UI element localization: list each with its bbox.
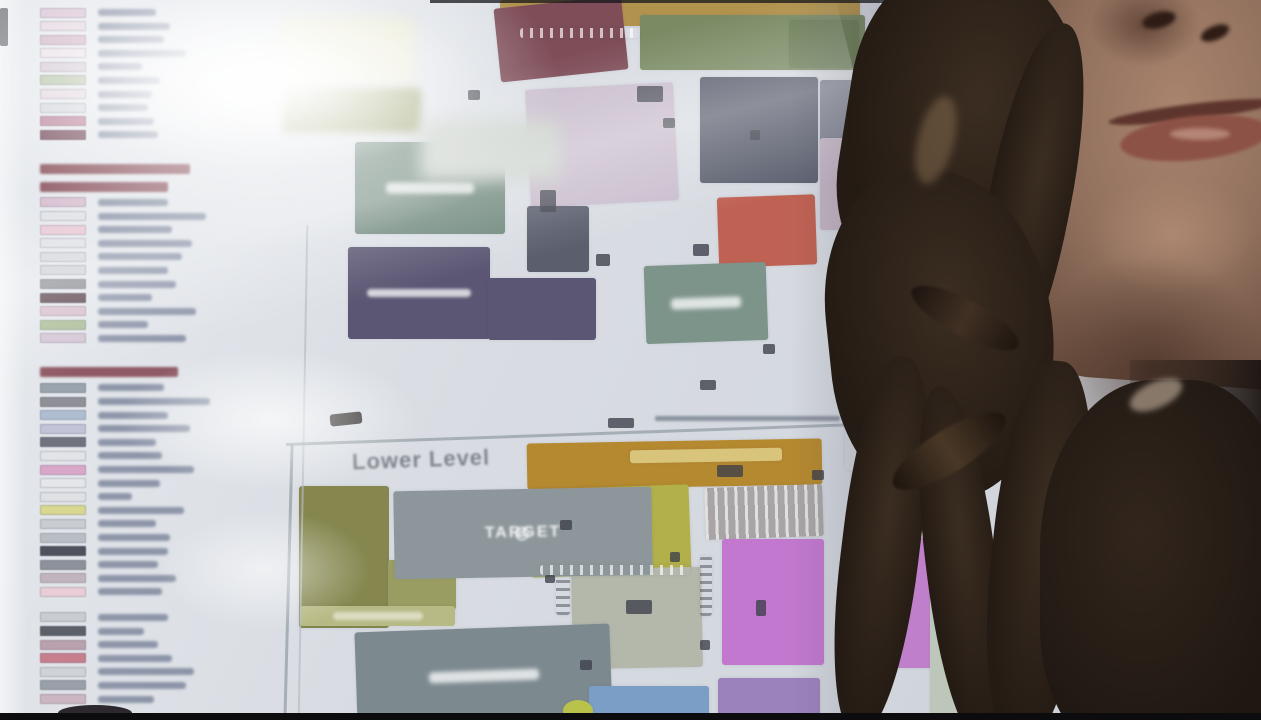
letterbox-bar <box>0 713 1261 720</box>
target-wordmark: TARGET <box>485 523 562 542</box>
map-icon <box>700 640 710 650</box>
map-icon <box>596 254 610 266</box>
map-icon <box>763 344 775 354</box>
washed-walkway <box>420 120 560 180</box>
parking-ticks <box>540 565 690 575</box>
upper-purple-ext <box>488 278 596 340</box>
store-label-blurred <box>671 296 741 309</box>
glare-washed-block <box>282 18 414 82</box>
map-icon <box>693 244 709 256</box>
map-icon <box>545 575 555 583</box>
map-icon <box>717 465 743 477</box>
map-icon <box>560 520 572 530</box>
lower-level-title: Lower Level <box>352 445 491 476</box>
frame-top-line <box>430 0 885 3</box>
upper-slate-small <box>527 206 589 272</box>
map-icon <box>637 86 663 102</box>
person-hair <box>1040 380 1261 720</box>
map-icon <box>670 552 680 562</box>
person-lip-highlight <box>1170 128 1230 140</box>
map-icon <box>540 190 556 212</box>
lower-ochre-band <box>527 438 823 489</box>
upper-olive-washed <box>283 88 421 132</box>
lower-olive-strip <box>300 606 455 626</box>
fine-print-blurred <box>655 416 840 421</box>
upper-maroon-block <box>493 0 628 82</box>
map-icon <box>700 380 716 390</box>
map-icon <box>608 418 634 428</box>
map-icon <box>756 600 766 616</box>
upper-salmon-block <box>717 194 817 267</box>
parking-ticks <box>520 28 640 38</box>
upper-green-anchor <box>644 262 769 344</box>
map-icon <box>663 118 675 128</box>
lower-magenta-block <box>722 539 824 665</box>
upper-purple-anchor <box>348 247 490 339</box>
crosswalk <box>700 556 712 616</box>
map-icon <box>812 470 824 480</box>
store-label-blurred <box>428 668 538 683</box>
upper-green-block <box>789 20 859 68</box>
map-icon <box>626 600 652 614</box>
map-icon <box>580 660 592 670</box>
store-label-blurred <box>386 183 474 194</box>
store-label-blurred <box>333 612 423 620</box>
lower-banner-strip <box>630 448 782 464</box>
store-label-blurred <box>367 289 471 297</box>
video-frame: ◎TARGET Lower Level <box>0 0 1261 720</box>
crosswalk <box>556 575 570 615</box>
map-icon <box>468 90 480 100</box>
map-icon <box>750 130 760 140</box>
lower-shops-strip <box>704 484 824 540</box>
